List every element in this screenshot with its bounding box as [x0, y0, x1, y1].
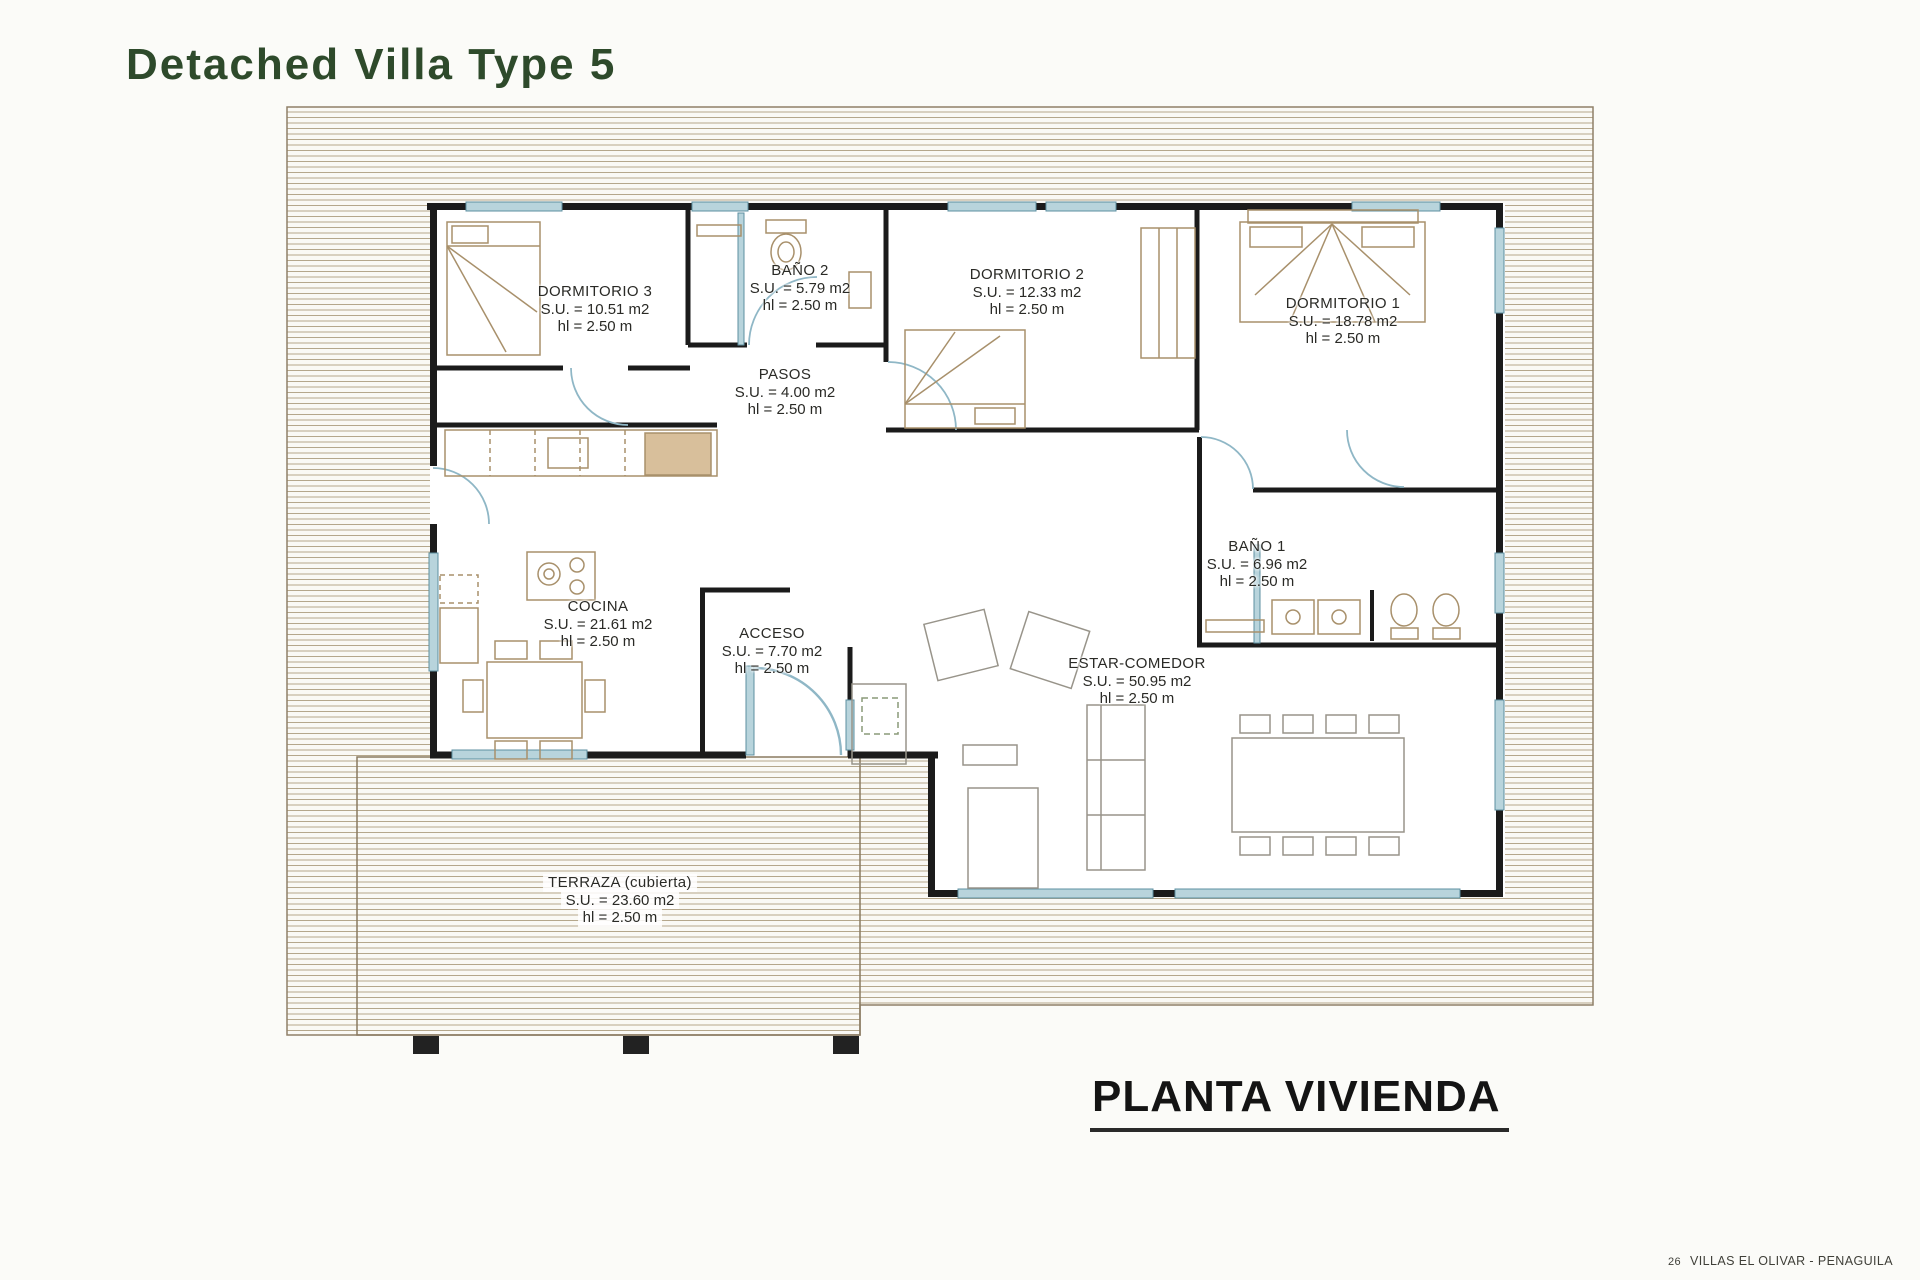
room-name: BAÑO 2	[750, 262, 850, 280]
room-area: S.U. = 18.78 m2	[1286, 313, 1401, 331]
room-name: TERRAZA (cubierta)	[543, 874, 697, 892]
room-height: hl = 2.50 m	[1286, 330, 1401, 348]
room-area: S.U. = 12.33 m2	[970, 284, 1085, 302]
room-name: ACCESO	[722, 625, 822, 643]
room-name: ESTAR-COMEDOR	[1068, 655, 1205, 673]
room-area: S.U. = 23.60 m2	[561, 892, 680, 910]
room-label-bano-2: BAÑO 2 S.U. = 5.79 m2 hl = 2.50 m	[750, 262, 850, 315]
room-label-estar-comedor: ESTAR-COMEDOR S.U. = 50.95 m2 hl = 2.50 …	[1068, 655, 1205, 708]
room-label-terraza: TERRAZA (cubierta) S.U. = 23.60 m2 hl = …	[543, 874, 697, 927]
footer-project-name: VILLAS EL OLIVAR - PENAGUILA	[1690, 1254, 1893, 1268]
room-name: COCINA	[544, 598, 653, 616]
room-name: BAÑO 1	[1207, 538, 1307, 556]
room-height: hl = 2.50 m	[735, 401, 835, 419]
room-name: DORMITORIO 1	[1286, 295, 1401, 313]
room-area: S.U. = 5.79 m2	[750, 280, 850, 298]
room-height: hl = 2.50 m	[970, 301, 1085, 319]
room-height: hl = 2.50 m	[1207, 573, 1307, 591]
room-height: hl = 2.50 m	[538, 318, 653, 336]
room-name: DORMITORIO 2	[970, 266, 1085, 284]
plan-caption: PLANTA VIVIENDA	[1090, 1072, 1509, 1132]
room-label-dormitorio-1: DORMITORIO 1 S.U. = 18.78 m2 hl = 2.50 m	[1286, 295, 1401, 348]
room-area: S.U. = 4.00 m2	[735, 384, 835, 402]
room-height: hl = 2.50 m	[578, 909, 663, 927]
room-name: DORMITORIO 3	[538, 283, 653, 301]
room-height: hl = 2.50 m	[544, 633, 653, 651]
room-height: hl = 2.50 m	[750, 297, 850, 315]
room-label-pasos: PASOS S.U. = 4.00 m2 hl = 2.50 m	[735, 366, 835, 419]
room-label-cocina: COCINA S.U. = 21.61 m2 hl = 2.50 m	[544, 598, 653, 651]
room-area: S.U. = 6.96 m2	[1207, 556, 1307, 574]
room-label-acceso: ACCESO S.U. = 7.70 m2 hl = 2.50 m	[722, 625, 822, 678]
footer-text: 26VILLAS EL OLIVAR - PENAGUILA	[1668, 1254, 1893, 1268]
floor-plan-drawing	[0, 0, 1920, 1280]
room-label-dormitorio-3: DORMITORIO 3 S.U. = 10.51 m2 hl = 2.50 m	[538, 283, 653, 336]
room-area: S.U. = 7.70 m2	[722, 643, 822, 661]
room-area: S.U. = 10.51 m2	[538, 301, 653, 319]
room-height: hl = 2.50 m	[722, 660, 822, 678]
room-height: hl = 2.50 m	[1068, 690, 1205, 708]
room-name: PASOS	[735, 366, 835, 384]
room-area: S.U. = 50.95 m2	[1068, 673, 1205, 691]
floor-plan-page: Detached Villa Type 5	[0, 0, 1920, 1280]
footer-page-number: 26	[1668, 1256, 1681, 1268]
room-label-dormitorio-2: DORMITORIO 2 S.U. = 12.33 m2 hl = 2.50 m	[970, 266, 1085, 319]
room-label-bano-1: BAÑO 1 S.U. = 6.96 m2 hl = 2.50 m	[1207, 538, 1307, 591]
room-area: S.U. = 21.61 m2	[544, 616, 653, 634]
